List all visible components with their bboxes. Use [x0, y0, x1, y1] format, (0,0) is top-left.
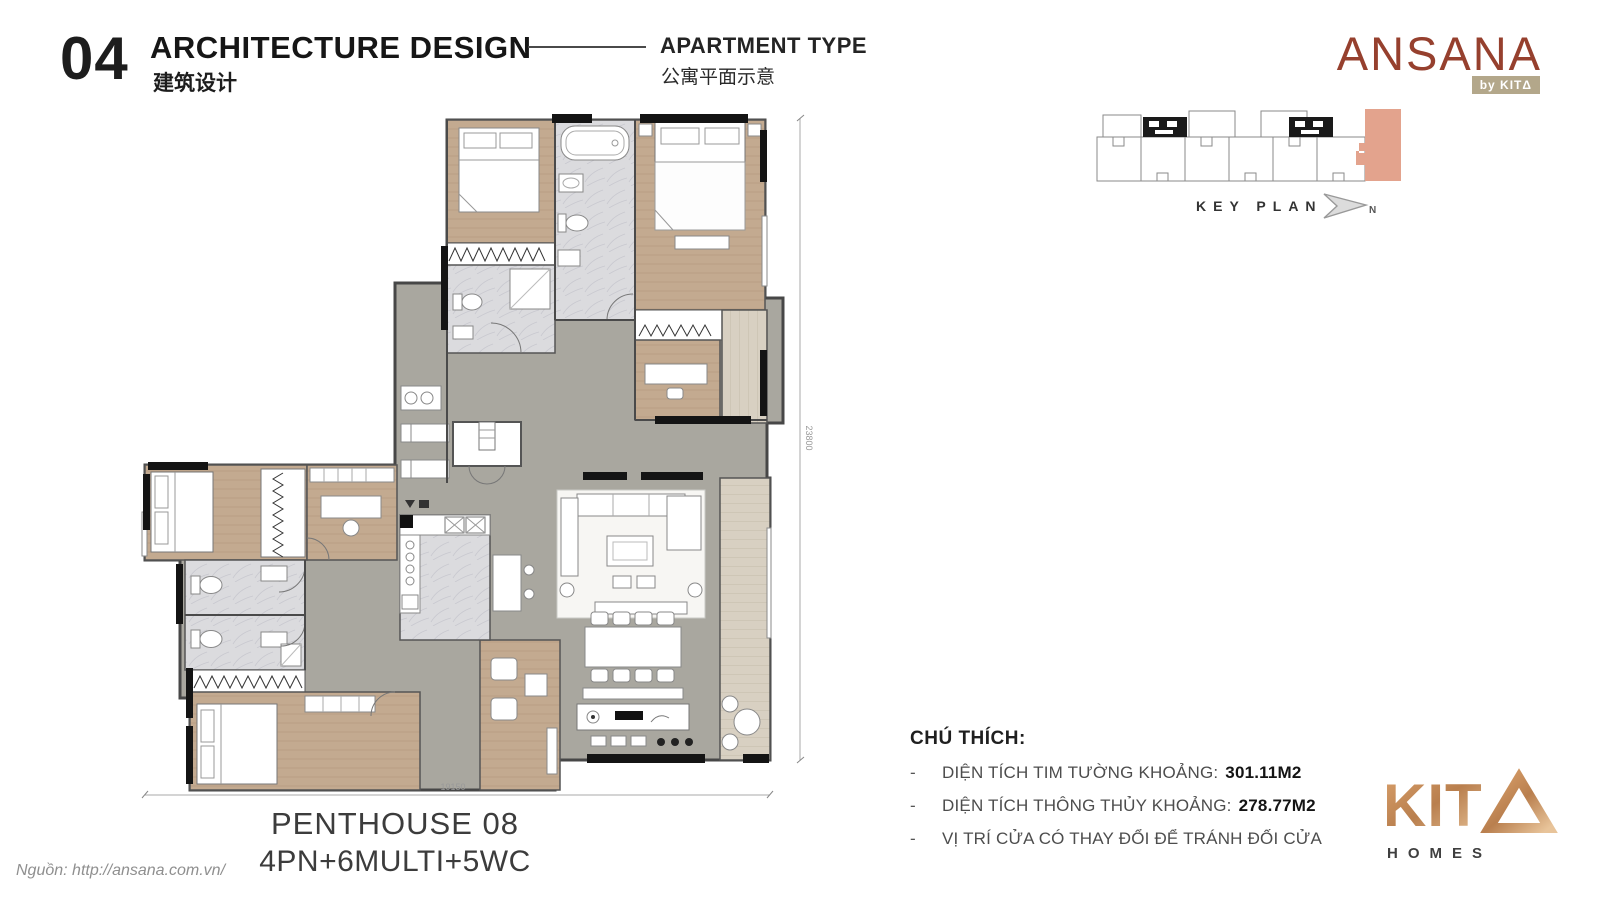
- legend-item: - VỊ TRÍ CỬA CÓ THAY ĐỔI ĐỂ TRÁNH ĐỐI CỬ…: [910, 829, 1380, 849]
- kita-wordmark: KIT: [1383, 768, 1558, 836]
- source-note: Nguồn: http://ansana.com.vn/: [16, 862, 225, 880]
- legend-item: - DIỆN TÍCH THÔNG THỦY KHOẢNG: 278.77M2: [910, 796, 1380, 816]
- master-closet: [635, 310, 722, 340]
- bedroom-3: [145, 465, 307, 560]
- master-bathroom: [555, 120, 635, 320]
- legend-item: - DIỆN TÍCH TIM TƯỜNG KHOẢNG: 301.11M2: [910, 763, 1380, 783]
- master-bedroom: [635, 120, 765, 310]
- closet-4: [190, 670, 305, 692]
- bathroom-3: [185, 560, 305, 670]
- legend: CHÚ THÍCH: - DIỆN TÍCH TIM TƯỜNG KHOẢNG:…: [910, 728, 1380, 849]
- by-kita-badge: by KITΔ: [1472, 76, 1540, 94]
- svg-text:23800: 23800: [804, 425, 814, 450]
- slide: 04 ARCHITECTURE DESIGN 建筑设计 APARTMENT TY…: [0, 0, 1600, 900]
- legend-bullet: -: [910, 763, 942, 783]
- living-room: [557, 490, 705, 618]
- dimension-height: 23800: [797, 115, 814, 763]
- multi-room-study: [635, 340, 720, 420]
- room-upper-left-bedroom: [447, 120, 555, 243]
- multi-room-2: [480, 640, 560, 790]
- legend-item-value: 278.77M2: [1239, 796, 1316, 816]
- bedroom-4: [190, 692, 420, 790]
- header-divider-line: [528, 46, 646, 48]
- study-room: [307, 465, 397, 560]
- page-title: ARCHITECTURE DESIGN: [150, 30, 532, 66]
- svg-text:N: N: [1369, 205, 1376, 216]
- legend-item-value: 301.11M2: [1225, 763, 1301, 783]
- apartment-program: 4PN+6MULTI+5WC: [225, 845, 565, 879]
- legend-bullet: -: [910, 829, 942, 849]
- page-subtitle-chinese: 公寓平面示意: [661, 62, 775, 89]
- keyplan-core-blocks: [1143, 117, 1333, 137]
- kita-homes-logo: KIT HOMES: [1383, 768, 1548, 862]
- floor-plan-drawing: 19150 23800: [55, 98, 815, 808]
- legend-bullet: -: [910, 796, 942, 816]
- legend-item-label: DIỆN TÍCH THÔNG THỦY KHOẢNG:: [942, 796, 1232, 816]
- svg-text:19150: 19150: [440, 782, 465, 792]
- plan-caption: PENTHOUSE 08 4PN+6MULTI+5WC: [225, 806, 565, 879]
- page-subtitle: APARTMENT TYPE: [660, 33, 867, 59]
- legend-item-label: DIỆN TÍCH TIM TƯỜNG KHOẢNG:: [942, 763, 1218, 783]
- legend-item-label: VỊ TRÍ CỬA CÓ THAY ĐỔI ĐỂ TRÁNH ĐỐI CỬA: [942, 829, 1322, 849]
- key-plan-drawing: [1093, 103, 1408, 195]
- kitchen: [400, 515, 490, 640]
- key-plan-label: KEY PLAN: [1196, 198, 1323, 214]
- triangle-a-icon: [1489, 778, 1549, 828]
- legend-title: CHÚ THÍCH:: [910, 728, 1380, 750]
- closet-upper-left: [447, 243, 555, 265]
- apartment-name: PENTHOUSE 08: [225, 806, 565, 842]
- ansana-logo: ANSANA: [1337, 26, 1542, 81]
- svg-text:KIT: KIT: [1383, 772, 1483, 836]
- bathroom-upper-left: [447, 265, 555, 353]
- page-title-chinese: 建筑设计: [153, 67, 237, 97]
- north-arrow-icon: N: [1322, 190, 1380, 224]
- section-number: 04: [60, 24, 129, 93]
- living-balcony: [720, 478, 770, 760]
- kita-homes-text: HOMES: [1387, 845, 1548, 862]
